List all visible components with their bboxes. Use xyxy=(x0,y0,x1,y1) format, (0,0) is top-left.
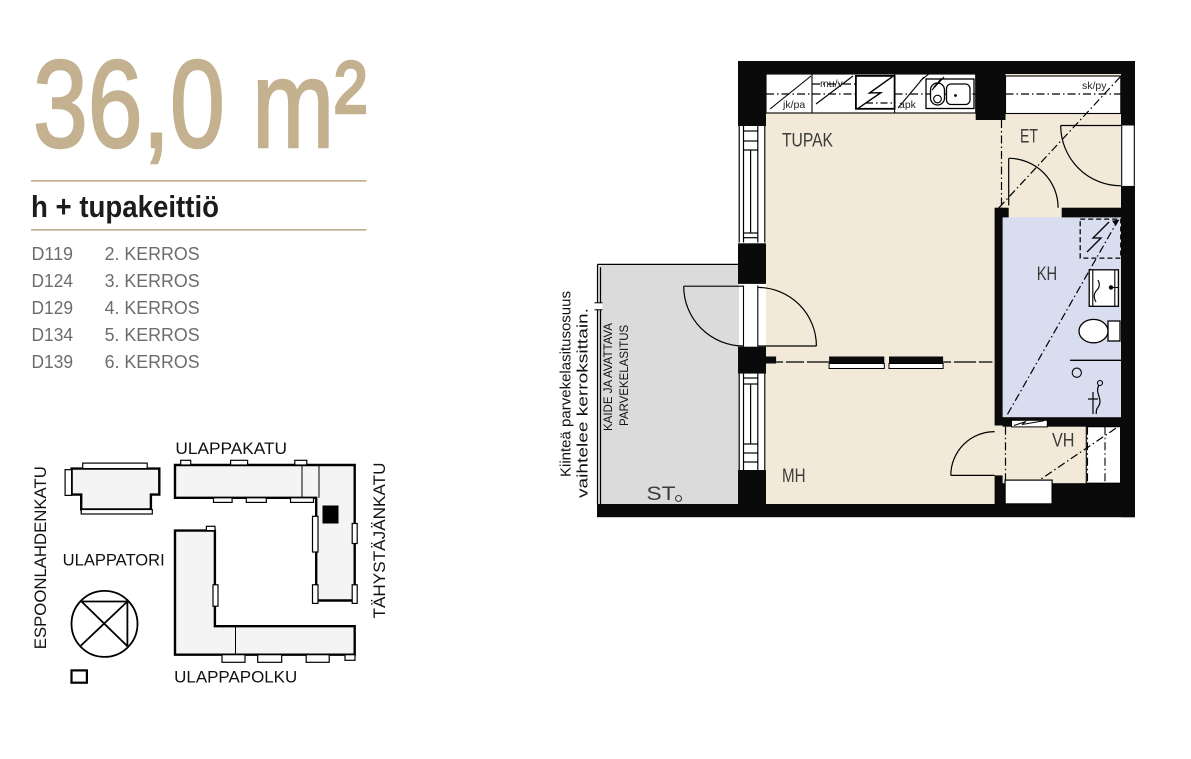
svg-text:ST: ST xyxy=(647,483,676,505)
svg-text:TUPAK: TUPAK xyxy=(782,129,833,151)
svg-text:ULAPPAKATU: ULAPPAKATU xyxy=(175,440,287,458)
svg-text:ULAPPAPOLKU: ULAPPAPOLKU xyxy=(174,669,297,687)
svg-text:Kiinteä parvekelasitusosuus: Kiinteä parvekelasitusosuus xyxy=(558,291,575,477)
svg-text:36,0 m²: 36,0 m² xyxy=(33,36,367,174)
svg-text:mu/v: mu/v xyxy=(820,78,844,90)
svg-text:sk/py: sk/py xyxy=(1082,80,1107,92)
svg-text:MH: MH xyxy=(782,465,806,487)
svg-text:D129: D129 xyxy=(32,297,74,318)
svg-text:h + tupakeittiö: h + tupakeittiö xyxy=(31,189,219,224)
svg-text:vaihtelee kerroksittain.: vaihtelee kerroksittain. xyxy=(575,308,592,498)
svg-text:PARVEKELASITUS: PARVEKELASITUS xyxy=(619,324,631,426)
svg-text:D124: D124 xyxy=(32,270,74,291)
svg-text:KAIDE JA AVATTAVA: KAIDE JA AVATTAVA xyxy=(603,323,615,431)
svg-text:VH: VH xyxy=(1052,430,1075,452)
svg-text:jk/pa: jk/pa xyxy=(782,99,805,111)
svg-text:D119: D119 xyxy=(32,243,74,264)
svg-text:5. KERROS: 5. KERROS xyxy=(105,324,200,345)
svg-text:KH: KH xyxy=(1037,263,1058,285)
svg-text:D134: D134 xyxy=(32,324,74,345)
svg-text:3. KERROS: 3. KERROS xyxy=(105,270,200,291)
svg-text:4. KERROS: 4. KERROS xyxy=(105,297,200,318)
svg-text:2. KERROS: 2. KERROS xyxy=(105,243,200,264)
svg-text:apk: apk xyxy=(899,99,917,111)
svg-text:6. KERROS: 6. KERROS xyxy=(105,351,200,372)
svg-text:ESPOONLAHDENKATU: ESPOONLAHDENKATU xyxy=(32,466,50,649)
svg-text:TÄHYSTÄJÄNKATU: TÄHYSTÄJÄNKATU xyxy=(371,463,389,619)
svg-text:ULAPPATORI: ULAPPATORI xyxy=(63,552,165,570)
svg-text:ET: ET xyxy=(1020,126,1038,148)
svg-text:D139: D139 xyxy=(32,351,74,372)
